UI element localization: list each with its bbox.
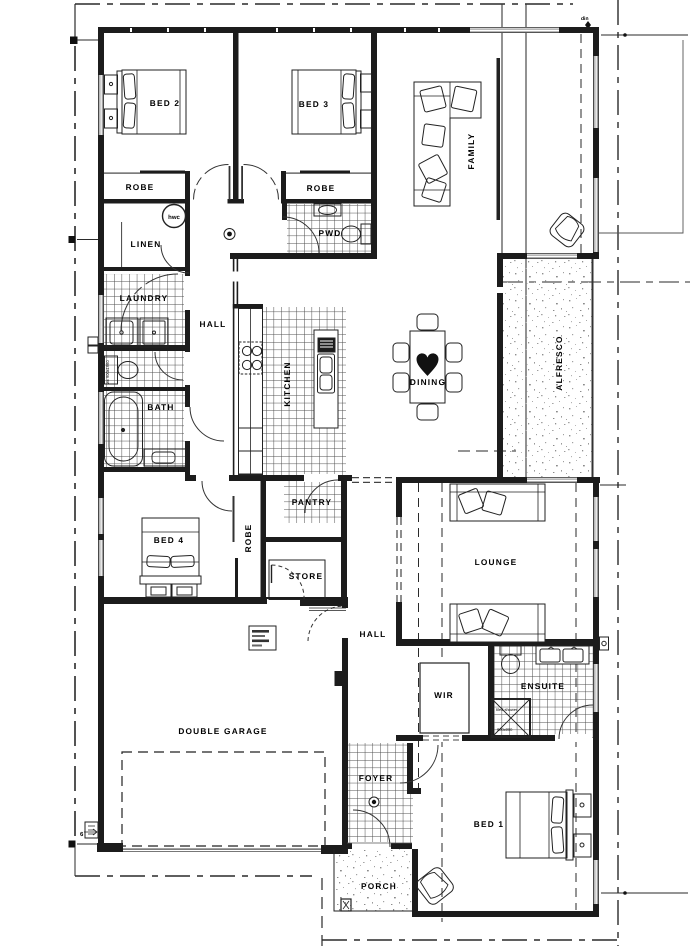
- svg-text:hwc: hwc: [168, 214, 180, 221]
- svg-text:DOUBLE GARAGE: DOUBLE GARAGE: [178, 726, 267, 736]
- svg-text:900x900: 900x900: [497, 727, 513, 732]
- svg-text:BED 3: BED 3: [299, 99, 329, 109]
- svg-text:DINING: DINING: [410, 377, 446, 387]
- svg-text:BED 1: BED 1: [474, 819, 504, 829]
- svg-text:KITCHEN: KITCHEN: [282, 361, 292, 406]
- svg-text:ROBE: ROBE: [307, 183, 336, 193]
- svg-text:LOUNGE: LOUNGE: [475, 557, 518, 567]
- svg-text:ENSUITE: ENSUITE: [521, 681, 565, 691]
- svg-text:PORCH: PORCH: [361, 881, 397, 891]
- svg-text:BED 4: BED 4: [154, 535, 184, 545]
- svg-text:ROBE: ROBE: [126, 182, 155, 192]
- svg-text:ALFRESCO: ALFRESCO: [554, 335, 564, 390]
- svg-text:din: din: [581, 16, 589, 22]
- svg-text:tiled shower: tiled shower: [496, 707, 518, 712]
- svg-text:ROBE: ROBE: [243, 524, 253, 553]
- svg-text:BATH: BATH: [147, 402, 174, 412]
- svg-text:LINEN: LINEN: [131, 239, 162, 249]
- svg-text:PANTRY: PANTRY: [292, 497, 332, 507]
- svg-text:WIR: WIR: [434, 690, 454, 700]
- svg-text:BED 2: BED 2: [150, 98, 180, 108]
- svg-text:wc 900x1660: wc 900x1660: [105, 360, 110, 384]
- svg-text:HALL: HALL: [200, 319, 227, 329]
- svg-text:FAMILY: FAMILY: [466, 133, 476, 170]
- svg-text:PWD: PWD: [319, 228, 342, 238]
- svg-text:HALL: HALL: [360, 629, 387, 639]
- svg-text:STORE: STORE: [289, 571, 323, 581]
- svg-text:FOYER: FOYER: [359, 773, 394, 783]
- svg-text:LAUNDRY: LAUNDRY: [120, 293, 169, 303]
